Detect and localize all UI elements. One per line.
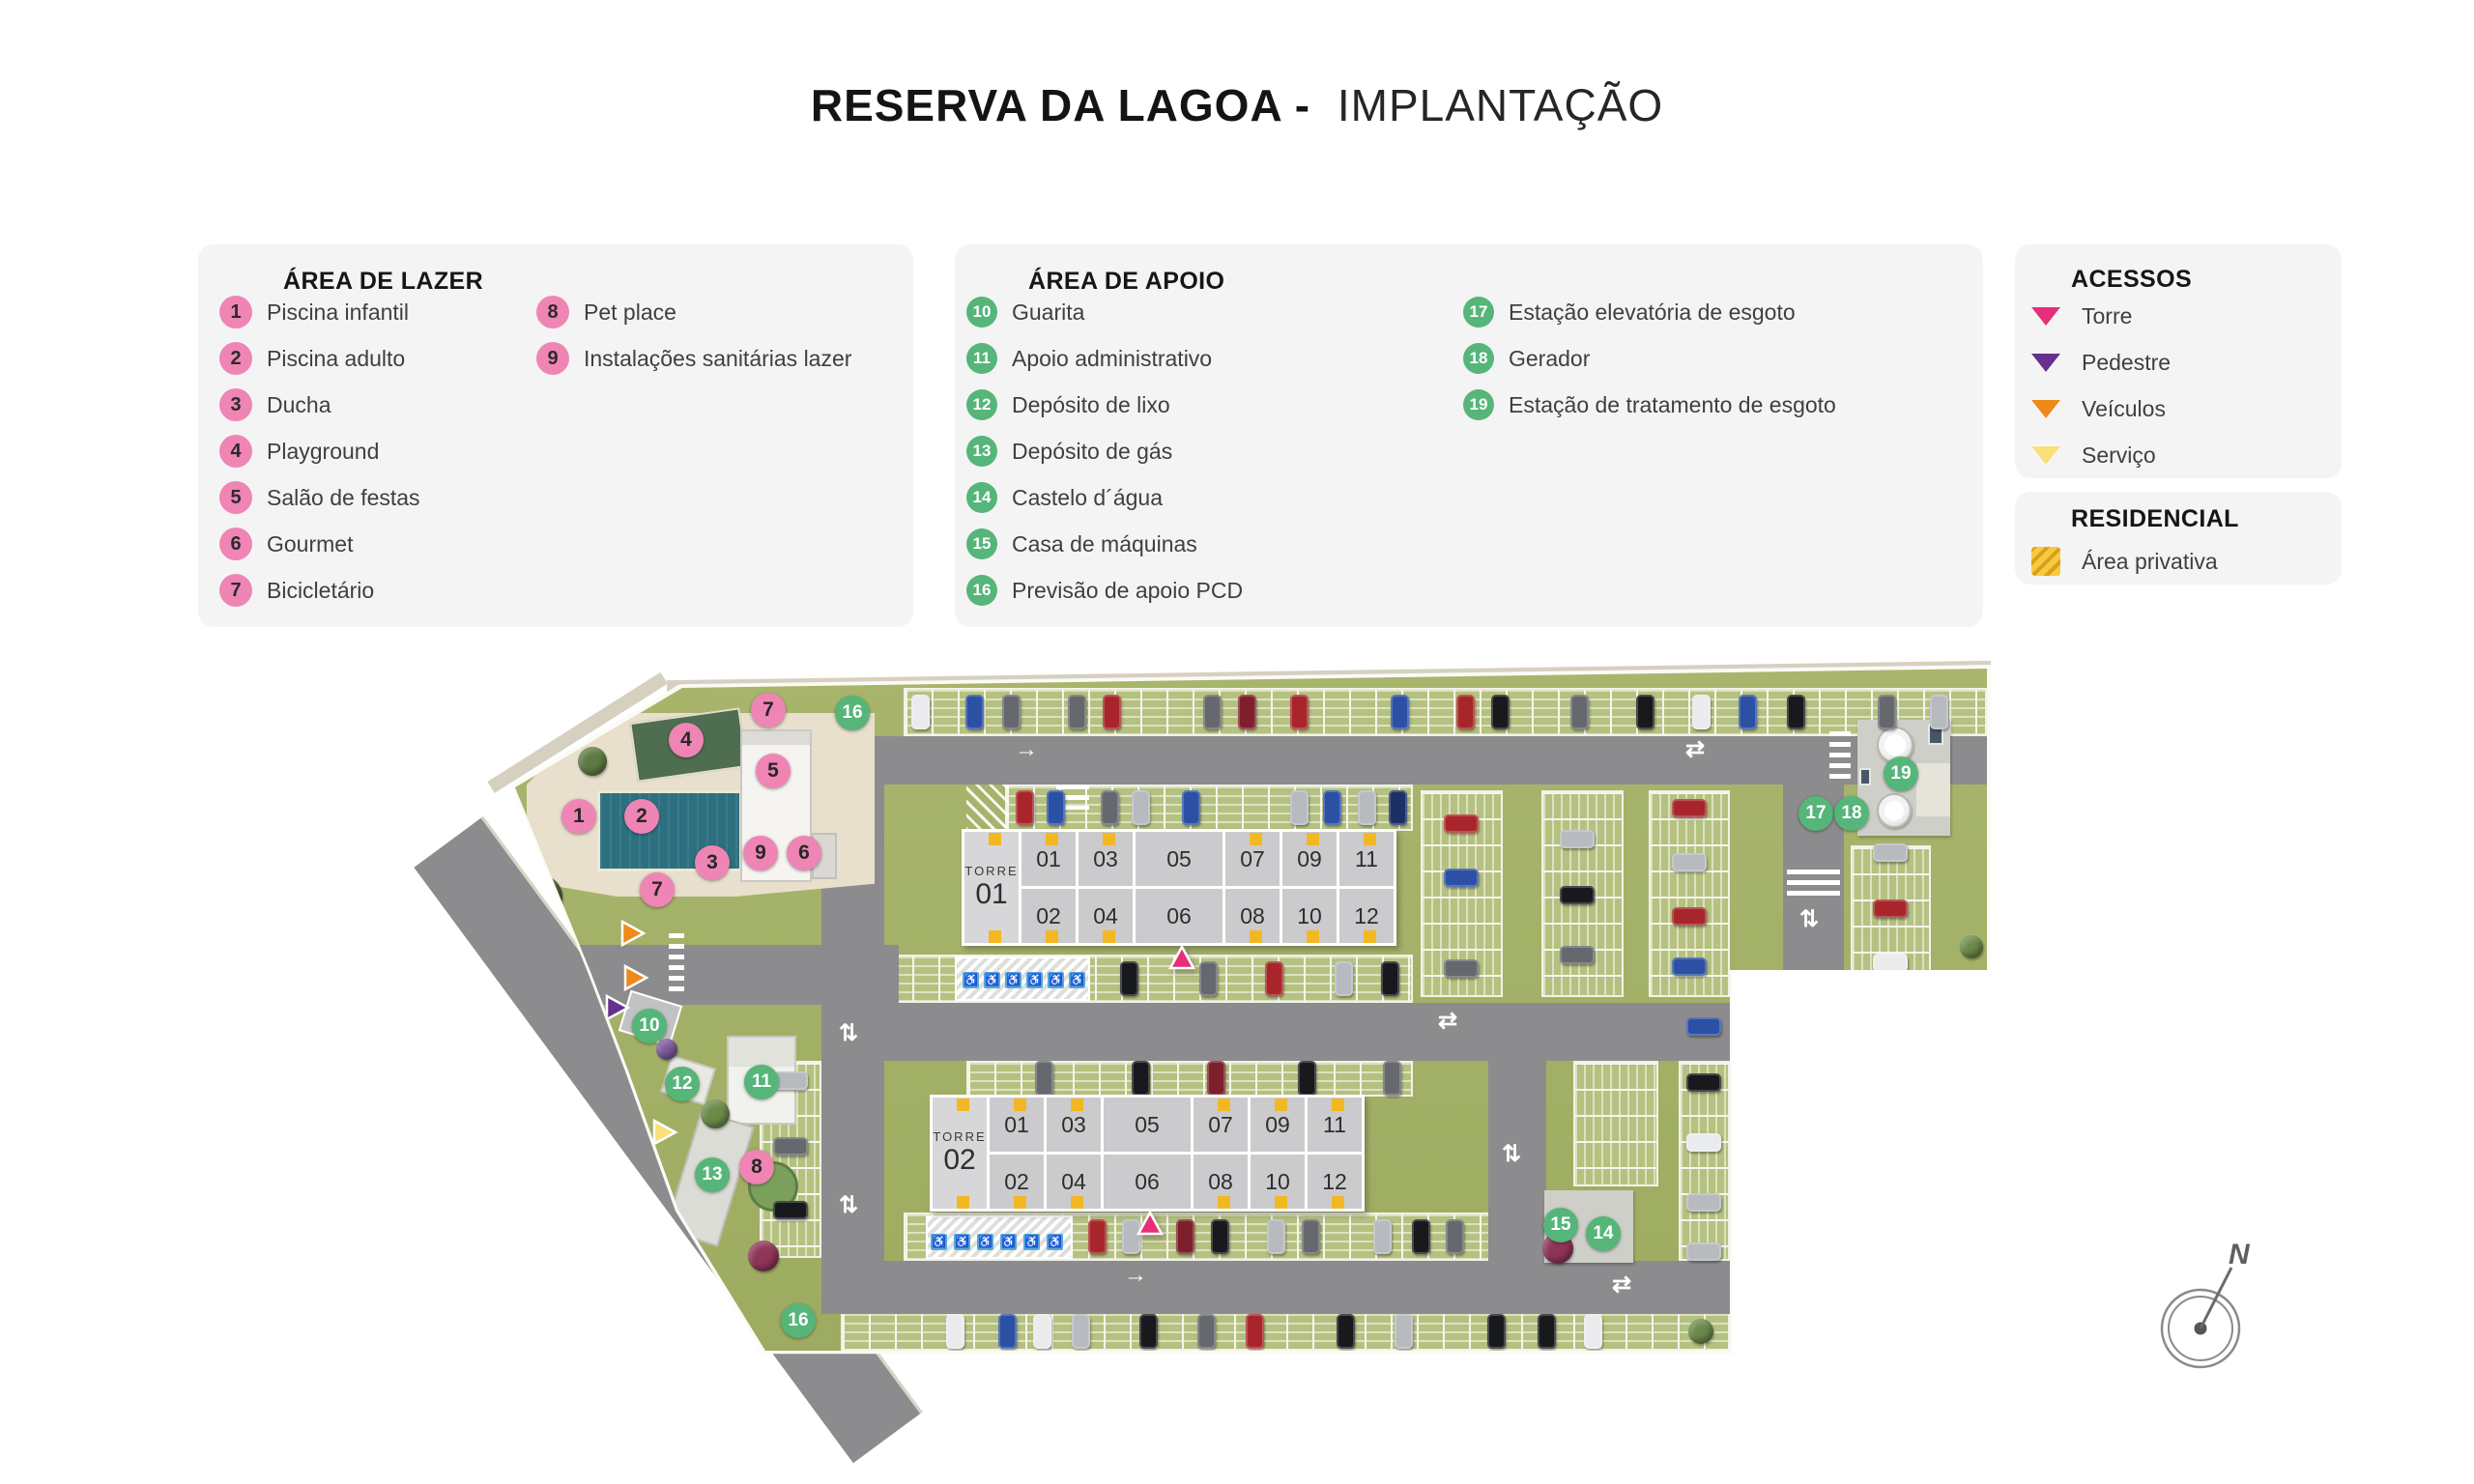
- car: [1395, 1314, 1413, 1349]
- access-veiculos-icon: [622, 963, 649, 992]
- car: [1672, 907, 1707, 926]
- map-marker-9: 9: [743, 836, 778, 870]
- legend-item-label: Pet place: [584, 300, 676, 326]
- private-area-marker-icon: [957, 1099, 969, 1111]
- car: [1686, 1073, 1721, 1092]
- tower-number: 02: [943, 1144, 975, 1177]
- car: [1302, 1219, 1320, 1254]
- legend-marker-3: 3: [219, 388, 252, 421]
- road-arrow-icon: ⇄: [1685, 738, 1705, 761]
- water-tank: [1877, 793, 1912, 828]
- tree-icon: [1960, 935, 1983, 958]
- car: [773, 1137, 808, 1156]
- tree-icon: [520, 875, 562, 918]
- car: [1873, 843, 1908, 862]
- legend-access-torre: Torre: [2025, 293, 2171, 339]
- servico-access-triangle-icon: [2025, 446, 2067, 465]
- car: [1538, 1314, 1556, 1349]
- access-veiculos-icon: [619, 919, 647, 948]
- private-area-marker-icon: [1364, 833, 1376, 845]
- car: [1072, 1314, 1090, 1349]
- road-arrow-icon: →: [1124, 1264, 1147, 1287]
- map-marker-14: 14: [1586, 1216, 1621, 1251]
- car: [1560, 830, 1595, 848]
- legend-card-residencial: RESIDENCIAL Área privativa: [2015, 492, 2342, 585]
- legend-residencial-label: Área privativa: [2082, 549, 2218, 575]
- car: [773, 1201, 808, 1219]
- car: [1298, 1061, 1316, 1096]
- legend-residencial-item: Área privativa: [2025, 538, 2218, 585]
- legend-item-label: Castelo d´água: [1012, 485, 1163, 511]
- legend-access-veiculos: Veículos: [2025, 385, 2171, 432]
- legend-item-12: 12Depósito de lixo: [966, 382, 1243, 428]
- legend-access-label: Serviço: [2082, 442, 2156, 469]
- legend-card-apoio: ÁREA DE APOIO 10Guarita11Apoio administr…: [955, 244, 1983, 627]
- car: [1570, 695, 1589, 729]
- access-servico-icon: [651, 1118, 678, 1147]
- legend-item-label: Bicicletário: [267, 578, 374, 604]
- car: [1686, 1017, 1721, 1036]
- car: [1002, 695, 1021, 729]
- legend-marker-2: 2: [219, 342, 252, 375]
- car: [1672, 853, 1707, 871]
- legend-marker-5: 5: [219, 481, 252, 514]
- car: [1739, 695, 1757, 729]
- legend-apoio-col2: 17Estação elevatória de esgoto18Gerador1…: [1463, 289, 1836, 428]
- private-area-marker-icon: [1014, 1099, 1026, 1111]
- legend-item-5: 5Salão de festas: [219, 474, 420, 521]
- map-marker-8: 8: [739, 1150, 774, 1184]
- car: [998, 1314, 1017, 1349]
- triangle-down-icon: [2031, 354, 2060, 372]
- site-plan: 010305TORRE01070911020406081012010305TOR…: [464, 662, 2000, 1420]
- tower-access-triangle-icon: [1168, 944, 1195, 971]
- legend-access-pedestre: Pedestre: [2025, 339, 2171, 385]
- car: [946, 1314, 964, 1349]
- tower-02-grid: 010305TORRE02070911020406081012: [933, 1098, 1362, 1209]
- legend-item-9: 9Instalações sanitárias lazer: [536, 335, 851, 382]
- legend-lazer-col1: 1Piscina infantil2Piscina adulto3Ducha4P…: [219, 289, 420, 614]
- legend-marker-6: 6: [219, 528, 252, 560]
- legend-marker-8: 8: [536, 296, 569, 328]
- car: [1120, 961, 1138, 996]
- legend-access-label: Pedestre: [2082, 350, 2171, 376]
- car: [1444, 959, 1479, 978]
- tree-icon: [570, 1036, 605, 1070]
- legend-item-label: Piscina adulto: [267, 346, 405, 372]
- legend-marker-10: 10: [966, 297, 997, 328]
- tower-02: 010305TORRE02070911020406081012: [930, 1095, 1365, 1212]
- road-arrow-icon: ⇄: [1438, 1010, 1457, 1033]
- car: [1033, 1314, 1051, 1349]
- car: [1444, 869, 1479, 887]
- legend-marker-9: 9: [536, 342, 569, 375]
- legend-residencial-title: RESIDENCIAL: [2071, 505, 2239, 533]
- private-area-marker-icon: [1071, 1196, 1083, 1209]
- legend-card-lazer: ÁREA DE LAZER 1Piscina infantil2Piscina …: [198, 244, 913, 627]
- parking-band-above-t2: [966, 1061, 1413, 1097]
- legend-item-label: Casa de máquinas: [1012, 531, 1197, 557]
- car: [1088, 1219, 1107, 1254]
- private-area-marker-icon: [1332, 1099, 1344, 1111]
- map-marker-17: 17: [1798, 796, 1833, 831]
- car: [1878, 695, 1896, 729]
- legend-item-label: Gourmet: [267, 531, 353, 557]
- private-area-marker-icon: [989, 930, 1001, 943]
- car: [1139, 1314, 1158, 1349]
- map-marker-16: 16: [835, 696, 870, 730]
- car: [1199, 961, 1218, 996]
- legend-item-label: Ducha: [267, 392, 331, 418]
- crosswalk-tanks-lower: [1787, 870, 1840, 897]
- road-arrow-icon: →: [1015, 738, 1038, 761]
- private-area-marker-icon: [1103, 930, 1115, 943]
- legend-item-label: Instalações sanitárias lazer: [584, 346, 851, 372]
- private-area-marker-icon: [1307, 930, 1319, 943]
- car: [1323, 790, 1341, 825]
- umbrella: [538, 768, 563, 793]
- hatch-swatch-icon: [2031, 547, 2060, 576]
- car: [1016, 790, 1034, 825]
- map-marker-6: 6: [787, 836, 821, 870]
- legend-item-8: 8Pet place: [536, 289, 851, 335]
- legend-marker-18: 18: [1463, 343, 1494, 374]
- car: [1686, 1193, 1721, 1212]
- car: [1412, 1219, 1430, 1254]
- car: [1381, 961, 1399, 996]
- legend-marker-11: 11: [966, 343, 997, 374]
- pcd-stall-icon: ♿: [963, 972, 979, 988]
- private-area-marker-icon: [1364, 930, 1376, 943]
- pcd-stall-icon: ♿: [1005, 972, 1021, 988]
- road-arrow-icon: ⇅: [1502, 1143, 1521, 1166]
- solar-panel: [1859, 768, 1871, 785]
- legend-item-14: 14Castelo d´água: [966, 474, 1243, 521]
- tree-icon: [656, 1039, 677, 1060]
- tree-icon: [1688, 1319, 1713, 1344]
- car: [1787, 695, 1805, 729]
- car: [1930, 695, 1948, 729]
- legend-marker-13: 13: [966, 436, 997, 467]
- map-marker-10: 10: [632, 1009, 667, 1043]
- car: [1101, 790, 1119, 825]
- legend-item-label: Gerador: [1509, 346, 1590, 372]
- tower-02-unit-06: 06: [1104, 1155, 1191, 1209]
- car: [1383, 1061, 1401, 1096]
- legend-lazer-col2: 8Pet place9Instalações sanitárias lazer: [536, 289, 851, 382]
- car: [1560, 946, 1595, 964]
- road-arrow-icon: ⇄: [1612, 1273, 1631, 1297]
- pcd-stall-icon: ♿: [1047, 1234, 1063, 1250]
- private-area-marker-icon: [1250, 930, 1262, 943]
- legend-marker-19: 19: [1463, 389, 1494, 420]
- private-area-marker-icon: [1103, 833, 1115, 845]
- road-arrow-icon: ⇅: [839, 1022, 858, 1045]
- car: [1132, 790, 1150, 825]
- pcd-stall-icon: ♿: [954, 1234, 970, 1250]
- tower-access-triangle-icon: [1136, 1210, 1164, 1237]
- legend-item-16: 16Previsão de apoio PCD: [966, 567, 1243, 614]
- private-area-marker-icon: [957, 1196, 969, 1209]
- tree-icon: [748, 1241, 779, 1271]
- map-marker-11: 11: [744, 1065, 779, 1099]
- tree-icon: [578, 747, 607, 776]
- legend-item-11: 11Apoio administrativo: [966, 335, 1243, 382]
- private-area-swatch-icon: [2025, 547, 2067, 576]
- car: [1132, 1061, 1150, 1096]
- car: [1103, 695, 1121, 729]
- private-area-marker-icon: [1250, 833, 1262, 845]
- tree-icon: [701, 1099, 730, 1128]
- private-area-marker-icon: [1218, 1099, 1230, 1111]
- car: [1182, 790, 1200, 825]
- car: [1873, 899, 1908, 918]
- car: [1389, 790, 1407, 825]
- map-marker-7: 7: [751, 693, 786, 728]
- private-area-marker-icon: [989, 833, 1001, 845]
- torre-access-triangle-icon: [2025, 307, 2067, 326]
- car: [1686, 1242, 1721, 1261]
- legend-item-7: 7Bicicletário: [219, 567, 420, 614]
- page-title-main: RESERVA DA LAGOA -: [811, 80, 1310, 130]
- map-marker-2: 2: [624, 799, 659, 834]
- legend-item-label: Salão de festas: [267, 485, 420, 511]
- pcd-stall-icon: ♿: [977, 1234, 993, 1250]
- legend-marker-12: 12: [966, 389, 997, 420]
- car: [1207, 1061, 1225, 1096]
- map-marker-7: 7: [640, 872, 675, 907]
- legend-acessos-items: TorrePedestreVeículosServiço: [2025, 293, 2171, 478]
- legend-item-10: 10Guarita: [966, 289, 1243, 335]
- tower-label: TORRE: [964, 864, 1018, 878]
- pcd-stall-icon: ♿: [1048, 972, 1064, 988]
- tower-01-unit-05: 05: [1136, 832, 1223, 886]
- legend-apoio-col1: 10Guarita11Apoio administrativo12Depósit…: [966, 289, 1243, 614]
- legend-item-label: Estação elevatória de esgoto: [1509, 300, 1796, 326]
- car: [1692, 695, 1711, 729]
- legend-item-6: 6Gourmet: [219, 521, 420, 567]
- legend-marker-14: 14: [966, 482, 997, 513]
- car: [1335, 961, 1353, 996]
- private-area-marker-icon: [1332, 1196, 1344, 1209]
- road-top: [836, 736, 1987, 785]
- legend-marker-17: 17: [1463, 297, 1494, 328]
- parking-col-tanks: [1851, 845, 1931, 995]
- pcd-stall-icon: ♿: [1069, 972, 1085, 988]
- car: [1358, 790, 1376, 825]
- legend-item-label: Guarita: [1012, 300, 1084, 326]
- map-marker-19: 19: [1884, 756, 1918, 791]
- legend-item-13: 13Depósito de gás: [966, 428, 1243, 474]
- pcd-stall-icon: ♿: [931, 1234, 947, 1250]
- treatment-walkway: [1916, 763, 1950, 816]
- car: [965, 695, 984, 729]
- legend-item-label: Estação de tratamento de esgoto: [1509, 392, 1836, 418]
- car: [1176, 1219, 1194, 1254]
- legend-item-17: 17Estação elevatória de esgoto: [1463, 289, 1836, 335]
- car: [1197, 1314, 1216, 1349]
- private-area-marker-icon: [1275, 1196, 1287, 1209]
- tower-01: 010305TORRE01070911020406081012: [962, 829, 1396, 946]
- compass-icon: [2143, 1241, 2278, 1396]
- private-area-marker-icon: [1275, 1099, 1287, 1111]
- triangle-down-icon: [2031, 400, 2060, 418]
- car: [1246, 1314, 1264, 1349]
- legend-marker-4: 4: [219, 435, 252, 468]
- map-marker-12: 12: [665, 1067, 700, 1101]
- pedestre-access-triangle-icon: [2025, 354, 2067, 372]
- map-marker-13: 13: [695, 1157, 730, 1192]
- legend-item-label: Previsão de apoio PCD: [1012, 578, 1243, 604]
- map-marker-18: 18: [1834, 796, 1869, 831]
- tower-number: 01: [975, 878, 1007, 911]
- hatch-area-t1: [966, 785, 1009, 831]
- parking-col-center-lower: [1573, 1061, 1658, 1186]
- legend-access-servico: Serviço: [2025, 432, 2171, 478]
- map-marker-1: 1: [561, 799, 596, 834]
- private-area-marker-icon: [1307, 833, 1319, 845]
- car: [1873, 954, 1908, 972]
- legend-access-label: Torre: [2082, 303, 2132, 329]
- compass-north-label: N: [2229, 1239, 2250, 1271]
- car: [1337, 1314, 1355, 1349]
- road-arrow-icon: ⇅: [1799, 908, 1819, 931]
- page-title-sub: IMPLANTAÇÃO: [1338, 80, 1663, 130]
- car: [1672, 957, 1707, 976]
- legend-item-label: Depósito de gás: [1012, 439, 1172, 465]
- legend-item-4: 4Playground: [219, 428, 420, 474]
- map-marker-16: 16: [781, 1303, 816, 1338]
- private-area-marker-icon: [1046, 833, 1058, 845]
- tower-02-core: TORRE02: [933, 1098, 987, 1209]
- page-title: RESERVA DA LAGOA - IMPLANTAÇÃO: [0, 79, 2474, 131]
- car: [1672, 799, 1707, 817]
- car: [1487, 1314, 1506, 1349]
- triangle-down-icon: [2031, 307, 2060, 326]
- car: [1238, 695, 1256, 729]
- private-area-marker-icon: [1046, 930, 1058, 943]
- pcd-stall-icon: ♿: [984, 972, 1000, 988]
- private-area-marker-icon: [1218, 1196, 1230, 1209]
- private-area-marker-icon: [1014, 1196, 1026, 1209]
- legend-marker-16: 16: [966, 575, 997, 606]
- tower-02-unit-05: 05: [1104, 1098, 1191, 1152]
- legend-acessos-title: ACESSOS: [2071, 266, 2192, 294]
- legend-item-label: Playground: [267, 439, 379, 465]
- car: [1211, 1219, 1229, 1254]
- legend-item-3: 3Ducha: [219, 382, 420, 428]
- legend-item-1: 1Piscina infantil: [219, 289, 420, 335]
- car: [1203, 695, 1222, 729]
- map-marker-5: 5: [756, 754, 791, 788]
- tower-01-core: TORRE01: [964, 832, 1019, 943]
- legend-item-label: Depósito de lixo: [1012, 392, 1170, 418]
- car: [1686, 1133, 1721, 1152]
- car: [1047, 790, 1065, 825]
- crosswalk-entrance: [669, 933, 684, 997]
- car: [1267, 1219, 1285, 1254]
- tower-01-unit-06: 06: [1136, 889, 1223, 943]
- legend-residencial-items: Área privativa: [2025, 538, 2218, 585]
- legend-item-18: 18Gerador: [1463, 335, 1836, 382]
- legend-marker-1: 1: [219, 296, 252, 328]
- car: [1584, 1314, 1602, 1349]
- car: [1636, 695, 1654, 729]
- car: [549, 968, 588, 1003]
- car: [1265, 961, 1283, 996]
- tower-label: TORRE: [933, 1129, 986, 1144]
- legend-item-label: Piscina infantil: [267, 300, 409, 326]
- car: [1290, 790, 1309, 825]
- car: [1391, 695, 1409, 729]
- map-marker-15: 15: [1543, 1208, 1578, 1242]
- road-arrow-icon: ⇅: [839, 1194, 858, 1217]
- private-area-marker-icon: [1071, 1099, 1083, 1111]
- car: [1035, 1061, 1053, 1096]
- legend-card-acessos: ACESSOS TorrePedestreVeículosServiço: [2015, 244, 2342, 478]
- veiculos-access-triangle-icon: [2025, 400, 2067, 418]
- car: [1444, 814, 1479, 833]
- car: [1456, 695, 1475, 729]
- map-marker-4: 4: [669, 723, 704, 757]
- car: [1290, 695, 1309, 729]
- legend-item-19: 19Estação de tratamento de esgoto: [1463, 382, 1836, 428]
- car: [911, 695, 930, 729]
- pcd-stall-icon: ♿: [1026, 972, 1043, 988]
- pcd-stall-icon: ♿: [1000, 1234, 1017, 1250]
- legend-marker-7: 7: [219, 574, 252, 607]
- legend-access-label: Veículos: [2082, 396, 2166, 422]
- legend-marker-15: 15: [966, 528, 997, 559]
- car: [1491, 695, 1510, 729]
- parking-band-top: [904, 688, 1987, 736]
- legend-item-15: 15Casa de máquinas: [966, 521, 1243, 567]
- triangle-down-icon: [2031, 446, 2060, 465]
- legend-item-2: 2Piscina adulto: [219, 335, 420, 382]
- site-grounds: 010305TORRE01070911020406081012010305TOR…: [464, 662, 2000, 1420]
- pcd-stall-icon: ♿: [1023, 1234, 1040, 1250]
- car: [1560, 886, 1595, 904]
- car: [1373, 1219, 1392, 1254]
- map-marker-3: 3: [695, 845, 730, 880]
- road-bottom: [821, 1261, 1730, 1314]
- legend-item-label: Apoio administrativo: [1012, 346, 1212, 372]
- car: [1446, 1219, 1464, 1254]
- car: [1068, 695, 1086, 729]
- crosswalk-tanks-upper: [1829, 731, 1851, 785]
- tower-01-grid: 010305TORRE01070911020406081012: [964, 832, 1394, 943]
